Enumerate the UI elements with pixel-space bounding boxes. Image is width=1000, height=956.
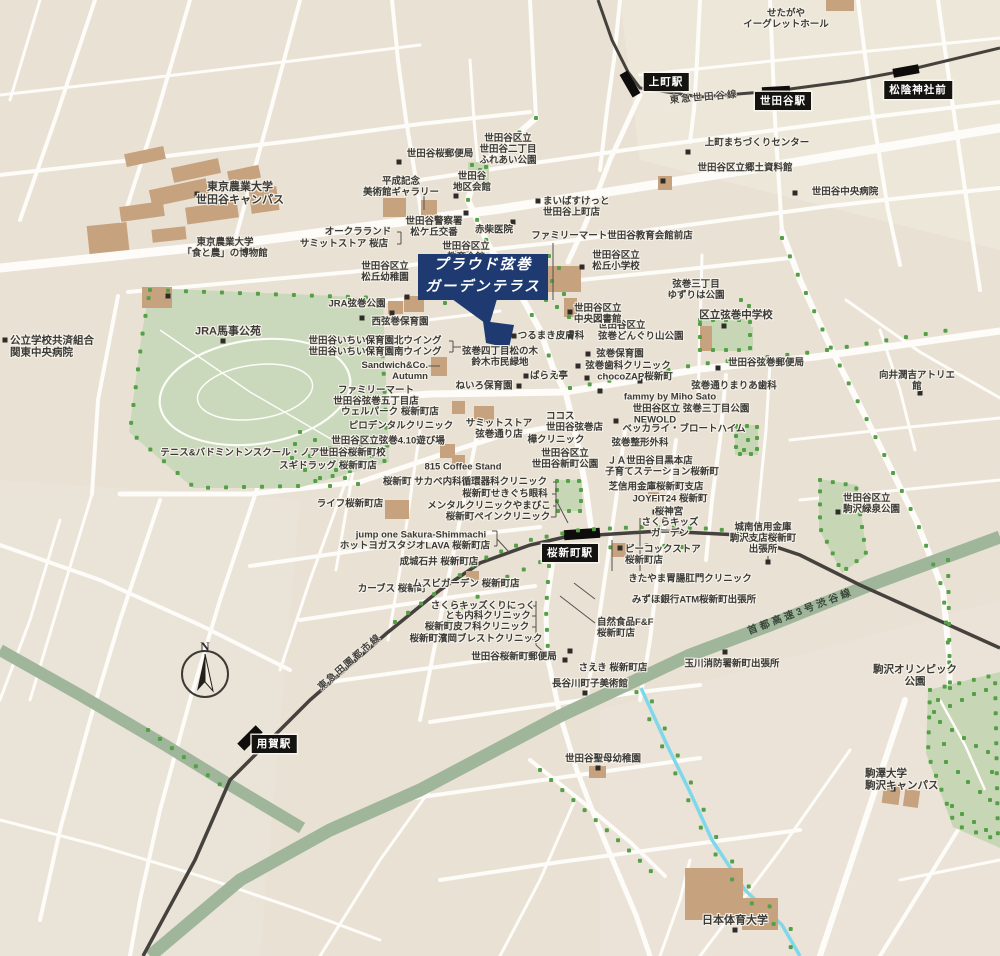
map-label: メンタルクリニックやまびこ (427, 500, 551, 511)
map-label: ピーコックストア 桜新町店 (625, 544, 701, 566)
map-label: 世田谷区立 弦巻どんぐり山公園 (598, 320, 684, 342)
map-label: NEWOLD (634, 414, 676, 425)
map-label: 東京農業大学 世田谷キャンパス (196, 181, 284, 207)
map-label: 赤柴医院 (475, 224, 513, 235)
map-label: さくらキッズ ガーデン (641, 517, 698, 539)
map-label: 日本体育大学 (702, 915, 768, 928)
map-label: 弦巻歯科クリニック (585, 360, 671, 371)
map-label: 世田谷区立 松丘小学校 (592, 250, 640, 272)
compass-rose: N (176, 641, 234, 703)
map-label: サミットストア 弦巻通り店 (466, 418, 533, 440)
map-label: ピロデンタルクリニック (349, 420, 454, 431)
map-label: chocoZAP桜新町 (597, 371, 672, 382)
map-labels-layer: せたがや イーグレットホール上町まちづくりセンター世田谷区立郷土資料館世田谷中央… (0, 0, 1000, 956)
map-label: 向井潤吉アトリエ館 (876, 370, 959, 392)
map-label: 平成記念 美術館ギャラリー (363, 176, 439, 198)
property-name-line2: ガーデンテラス (418, 277, 548, 299)
map-label: ＪＡ世田谷目黒本店 (607, 455, 693, 466)
map-label: ライフ桜新町店 (317, 498, 384, 509)
map-label: 世田谷桜新町郵便局 (471, 651, 557, 662)
map-label: さえき 桜新町店 (579, 662, 648, 673)
map-label: 世田谷区立郷土資料館 (697, 162, 792, 173)
map-label: スギドラッグ 桜新町店 (279, 460, 377, 471)
station-label-sakura-shinmachi: 桜新町駅 (542, 544, 598, 562)
railway-name-label: 東急田園都市線 (314, 629, 384, 692)
map-label: ベッカライ・ブロートハイム (622, 423, 745, 434)
map-label: 西弦巻保育園 (371, 316, 428, 327)
map-label: 芝信用金庫桜新町支店 (608, 481, 703, 492)
map-label: 弦巻整形外科 (611, 437, 668, 448)
highway-name-label: 首都高速3号渋谷線 (745, 583, 855, 637)
map-label: 世田谷区立 中央図書館 (574, 303, 622, 325)
map-label: 自然食品F&F 桜新町店 (597, 617, 653, 639)
map-label: 世田谷いちい保育園北ウイング (308, 335, 441, 346)
map-label: 世田谷弦巻郵便局 (728, 357, 804, 368)
map-label: 世田谷区立弦巻4.10遊び場 (331, 435, 445, 446)
map-label: 駒沢オリンピック公園 (873, 664, 958, 689)
map-label: きたやま胃腸肛門クリニック (628, 573, 752, 584)
map-label: とも内科クリニック (445, 610, 531, 621)
map-label: 桜新町皮フ科クリニック (425, 621, 530, 632)
map-label: 世田谷区立 弦巻三丁目公園 (633, 403, 750, 414)
map-label: 玉川消防署新町出張所 (684, 658, 779, 669)
station-label-yoga: 用賀駅 (252, 735, 297, 753)
map-label: 世田谷聖母幼稚園 (565, 753, 641, 764)
map-label: 子育てステーション桜新町 (605, 466, 719, 477)
map-label: 成城石井 桜新町店 (400, 556, 479, 567)
map-label: ウェルパーク 桜新町店 (341, 406, 439, 417)
map-label: JRA馬事公苑 (195, 326, 261, 339)
map-label: 弦巻通りまりあ歯科 (691, 380, 777, 391)
map-label: テニス&バドミントンスクール・ノア世田谷桜新町校 (160, 447, 385, 458)
map-label: ねいろ保育園 (455, 380, 512, 391)
station-label-setagaya: 世田谷駅 (755, 92, 811, 110)
map-label: 世田谷区立 駒沢緑泉公園 (843, 493, 900, 515)
map-label: 世田谷桜郵便局 (407, 148, 474, 159)
map-label: Sandwich&Co. Autumn (361, 360, 428, 382)
map-label: 世田谷区立 松丘幼稚園 (361, 261, 409, 283)
map-label: 桜新町せきぐち眼科 (462, 488, 548, 499)
map-label: 弦巻保育園 (596, 348, 644, 359)
map-label: 上町まちづくりセンター (705, 137, 810, 148)
map-label: 世田谷警察署 松ケ丘交番 (405, 216, 462, 238)
map-label: せたがや イーグレットホール (743, 8, 829, 30)
map-label: オークラランド (325, 226, 392, 237)
map-label: JRA弦巻公園 (328, 298, 385, 309)
map-label: 弦巻三丁目 ゆずりは公園 (667, 279, 724, 301)
map-label: 公立学校共済組合 関東中央病院 (10, 335, 94, 360)
map-label: 樺クリニック (527, 434, 584, 445)
map-screenshot: せたがや イーグレットホール上町まちづくりセンター世田谷区立郷土資料館世田谷中央… (0, 0, 1000, 956)
map-label: 世田谷中央病院 (812, 186, 879, 197)
map-label: fammy by Miho Sato (624, 391, 716, 402)
map-label: 桜新町濱岡ブレストクリニック (409, 633, 542, 644)
property-callout: プラウド弦巻 ガーデンテラス (418, 254, 548, 300)
map-label: サミットストア 桜店 (300, 238, 388, 249)
map-label: JOYFIT24 桜新町 (633, 493, 708, 504)
map-label: 桜新町 サカベ内科循環器科クリニック (383, 476, 547, 487)
map-label: 桜新町ペインクリニック (446, 511, 551, 522)
station-label-kamimachi: 上町駅 (644, 73, 689, 91)
map-label: さくらキッズくりにっく (431, 600, 536, 611)
map-label: ココス 世田谷弦巻店 (546, 411, 603, 433)
map-label: 城南信用金庫 駒沢支店桜新町 出張所 (730, 522, 797, 556)
map-label: 東京農業大学 「食と農」の博物館 (182, 237, 268, 259)
map-label: 長谷川町子美術館 (552, 678, 628, 689)
map-label: ファミリーマート 世田谷弦巻五丁目店 (333, 385, 419, 407)
map-label: ホットヨガスタジオLAVA 桜新町店 (340, 540, 490, 551)
map-label: カーブス 桜新町 (358, 583, 427, 594)
map-label: まいばすけっと 世田谷上町店 (543, 196, 610, 218)
map-label: 弦巻四丁目松の木 鈴木市民緑地 (462, 346, 538, 368)
map-label: jump one Sakura-Shimmachi (356, 529, 486, 540)
north-indicator: N (200, 639, 209, 655)
map-label: 区立弦巻中学校 (699, 309, 773, 321)
map-label: 世田谷区立 世田谷新町公園 (532, 448, 599, 470)
map-label: みずほ銀行ATM桜新町出張所 (632, 594, 756, 605)
map-label: 世田谷 地区会館 (453, 171, 491, 193)
map-label: ムスビガーデン 桜新町店 (412, 578, 519, 589)
map-label: つるまき皮膚科 (518, 330, 585, 341)
map-label: 世田谷区立 世田谷二丁目 ふれあい公園 (479, 133, 536, 167)
map-label: 世田谷いちい保育園南ウイング (308, 346, 441, 357)
map-label: ばらえ亭 (530, 370, 568, 381)
map-label: 駒澤大学 駒沢キャンパス (865, 768, 939, 793)
station-label-shoin-jinja-mae: 松陰神社前 (884, 81, 952, 99)
map-label: 桜神宮 (655, 506, 684, 517)
property-name-line1: プラウド弦巻 (418, 255, 548, 277)
map-label: ファミリーマート世田谷教育会館前店 (531, 230, 693, 241)
map-label: 815 Coffee Stand (424, 461, 501, 472)
